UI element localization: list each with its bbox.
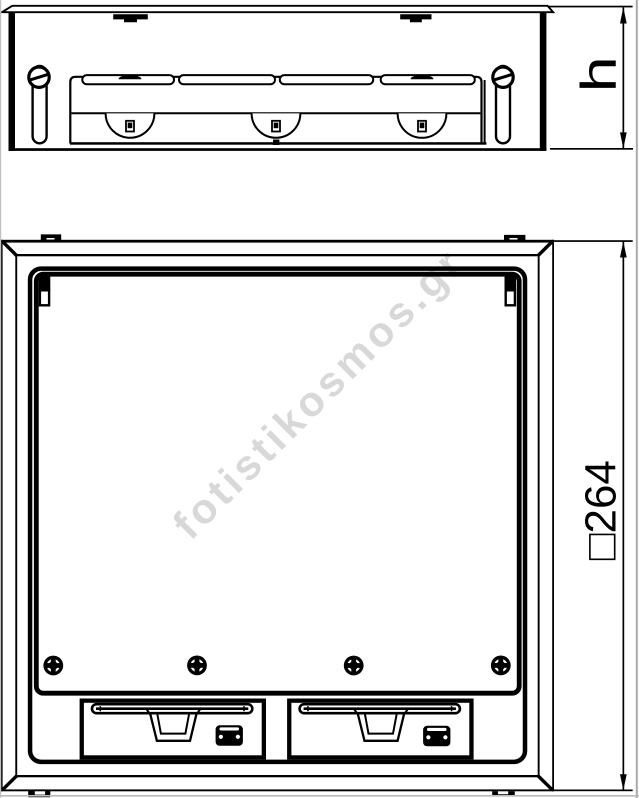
svg-text:□264: □264 bbox=[577, 460, 626, 560]
svg-text:h: h bbox=[572, 56, 627, 92]
